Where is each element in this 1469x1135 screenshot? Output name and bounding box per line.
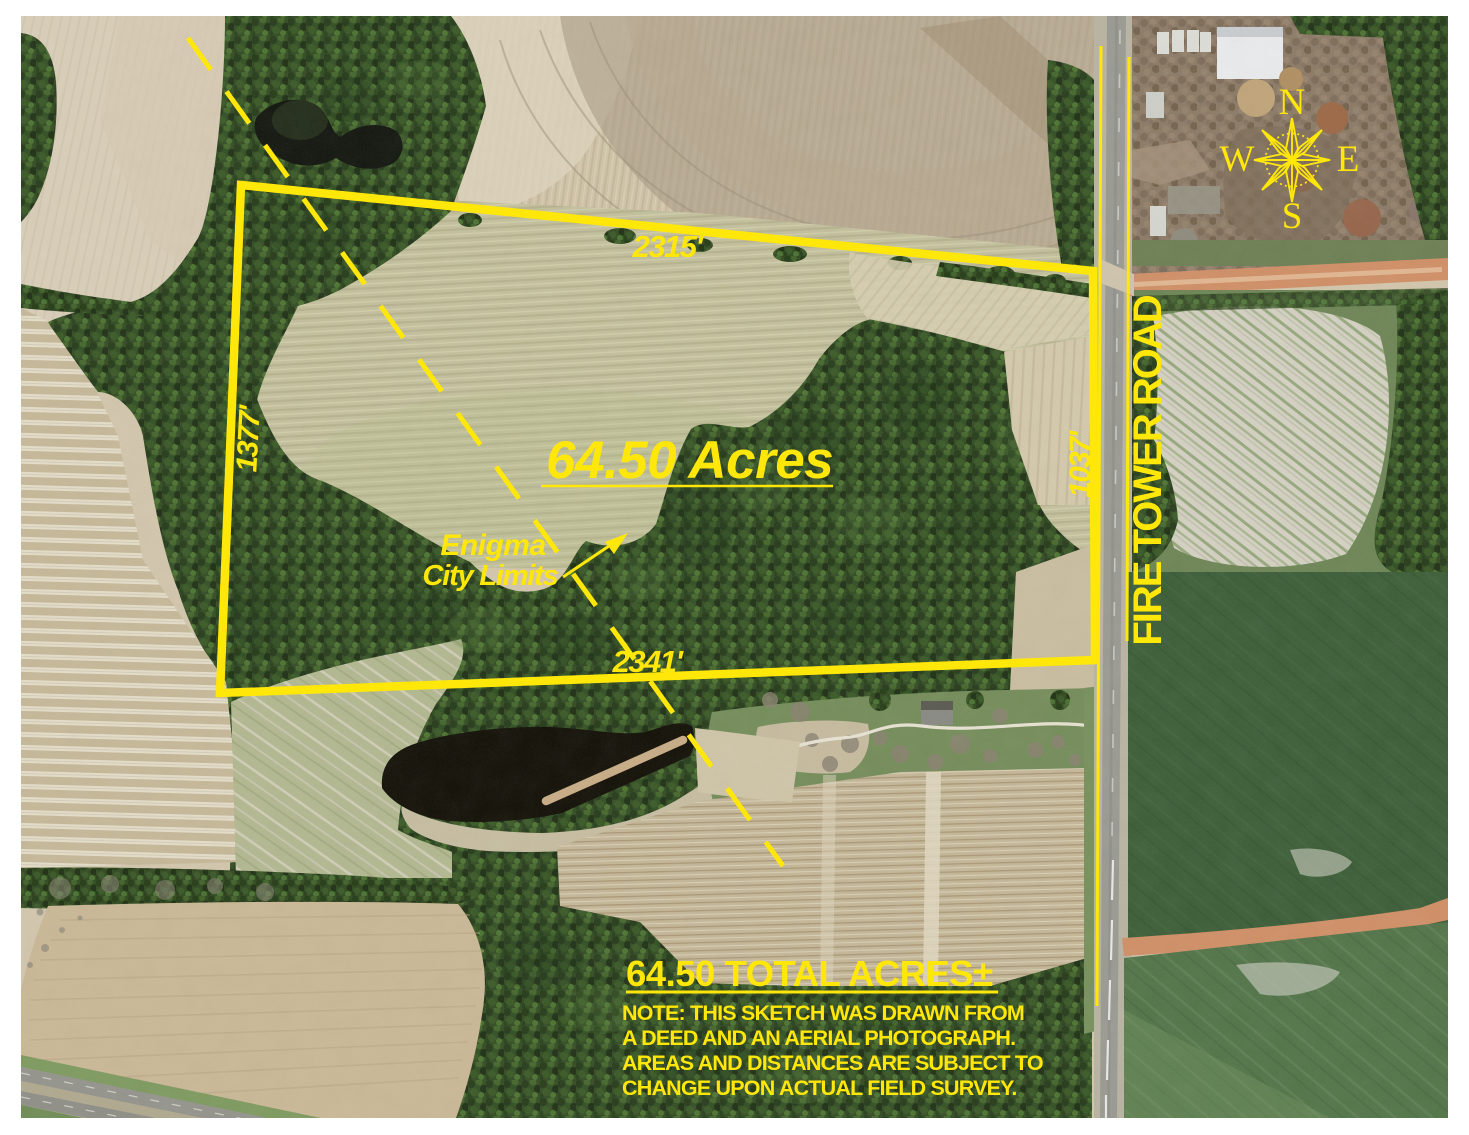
svg-text:A DEED AND AN AERIAL PHOTOGRAP: A DEED AND AN AERIAL PHOTOGRAPH. bbox=[622, 1026, 1015, 1050]
svg-text:1037': 1037' bbox=[1064, 430, 1097, 498]
svg-text:FIRE TOWER ROAD: FIRE TOWER ROAD bbox=[1126, 295, 1170, 645]
svg-text:NOTE: THIS SKETCH WAS DRAWN FR: NOTE: THIS SKETCH WAS DRAWN FROM bbox=[622, 1001, 1024, 1025]
svg-text:1377': 1377' bbox=[230, 404, 266, 473]
svg-text:Enigma: Enigma bbox=[440, 529, 545, 562]
svg-text:E: E bbox=[1337, 139, 1360, 180]
svg-text:S: S bbox=[1282, 196, 1303, 237]
svg-text:CHANGE UPON ACTUAL FIELD SURVE: CHANGE UPON ACTUAL FIELD SURVEY. bbox=[622, 1076, 1017, 1100]
svg-text:W: W bbox=[1220, 139, 1255, 180]
svg-text:2341': 2341' bbox=[612, 644, 685, 679]
svg-text:N: N bbox=[1279, 82, 1306, 123]
svg-text:City Limits: City Limits bbox=[422, 560, 558, 592]
svg-text:64.50 Acres: 64.50 Acres bbox=[546, 431, 833, 490]
svg-text:2315': 2315' bbox=[632, 229, 705, 264]
svg-text:64.50 TOTAL ACRES±: 64.50 TOTAL ACRES± bbox=[626, 953, 993, 994]
svg-text:AREAS AND DISTANCES ARE SUBJEC: AREAS AND DISTANCES ARE SUBJECT TO bbox=[622, 1051, 1043, 1075]
